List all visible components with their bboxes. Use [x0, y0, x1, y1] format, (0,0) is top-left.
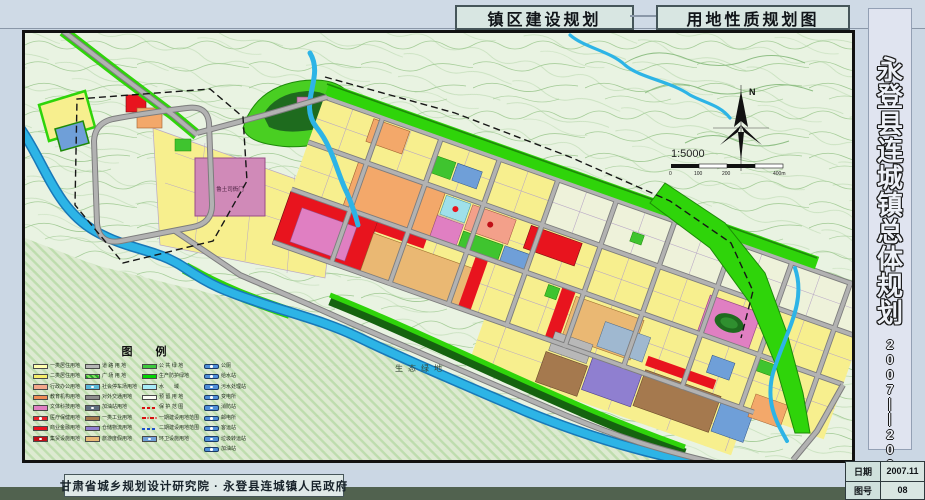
legend-item: 广 场 用 地 — [85, 372, 137, 381]
legend-item-label: 公 共 绿 地 — [159, 364, 183, 369]
legend-swatch-symbol-icon — [210, 438, 213, 441]
legend-item: 公 共 绿 地 — [142, 362, 199, 371]
legend-swatch-symbol-icon — [210, 396, 213, 399]
stamp-table: 日期 2007.11 图号 08 — [845, 461, 925, 500]
legend-swatch — [142, 364, 157, 370]
legend-item: 保 护 范 围 — [142, 404, 199, 413]
legend-item-label: 加油站 — [221, 447, 236, 452]
legend-swatch-symbol-icon — [148, 438, 151, 441]
sheet-title-series: 镇区建设规划 — [455, 5, 634, 30]
legend-item: 对外交通用地 — [85, 393, 137, 402]
legend-item-label: 一期建设用地范围 — [159, 416, 199, 421]
legend-item-label: 邮电所 — [221, 416, 236, 421]
legend-item: 邮电所 — [204, 414, 246, 423]
scale-tick-400: 400m — [773, 171, 786, 177]
legend-item-label: 垃圾转运站 — [221, 437, 246, 442]
date-value: 2007.11 — [881, 462, 924, 481]
legend-item: 教育机构用地 — [33, 393, 80, 402]
legend-item: 集贸设施用地 — [33, 435, 80, 444]
legend-swatch — [142, 436, 157, 442]
legend-title: 图 例 — [33, 343, 265, 359]
legend-item-label: 客运站 — [221, 426, 236, 431]
legend-item-label: 一类工业用地 — [102, 416, 132, 421]
vertical-char: — — [883, 413, 898, 426]
sheet-title-map-label: 用地性质规划图 — [686, 6, 819, 30]
stamp-row-date: 日期 2007.11 — [846, 462, 924, 481]
vertical-char: 2 — [886, 427, 893, 442]
legend-swatch — [204, 447, 219, 453]
vertical-char: 划 — [877, 300, 903, 327]
legend-swatch — [204, 395, 219, 401]
credit-box: 甘肃省城乡规划设计研究院 · 永登县连城镇人民政府 — [64, 474, 344, 497]
legend-swatch — [85, 416, 100, 422]
legend-item-label: 广 场 用 地 — [102, 374, 126, 379]
legend-item-label: 医疗保健用地 — [50, 416, 80, 421]
legend-columns: 一类居住用地二类居住用地行政办公用地教育机构用地文体科技用地医疗保健用地商业金融… — [33, 362, 265, 454]
scale-tick-0: 0 — [669, 171, 672, 177]
legend-item: 文体科技用地 — [33, 404, 80, 413]
legend-item: 客运站 — [204, 424, 246, 433]
legend-item: 生产防护绿地 — [142, 372, 199, 381]
legend-item: 给水站 — [204, 372, 246, 381]
legend-item: 旅游度假用地 — [85, 435, 137, 444]
legend-item-label: 教育机构用地 — [50, 395, 80, 400]
legend-item-label: 消防站 — [221, 405, 236, 410]
legend-item: 行政办公用地 — [33, 383, 80, 392]
sheet-title-map: 用地性质规划图 — [656, 5, 850, 30]
label-yamen: 鲁土司衙门 — [216, 185, 244, 193]
legend-swatch — [33, 395, 48, 401]
legend-item-label: 仓储物流用地 — [102, 426, 132, 431]
legend-swatch-symbol-icon — [210, 427, 213, 430]
legend-swatch-symbol-icon — [210, 375, 213, 378]
vertical-char: 体 — [877, 246, 903, 273]
legend-item: 变电所 — [204, 393, 246, 402]
legend-swatch — [33, 384, 48, 390]
legend-swatch — [85, 405, 100, 411]
legend-swatch — [142, 374, 157, 380]
plan-sheet: 镇区建设规划 用地性质规划图 — [0, 0, 925, 500]
legend-swatch — [142, 384, 157, 390]
compass-north-label: N — [749, 87, 756, 97]
scale-ratio: 1:5000 — [671, 148, 705, 160]
vertical-char: 镇 — [877, 192, 903, 219]
legend-item: 医疗保健用地 — [33, 414, 80, 423]
map-frame: 鲁土司衙门 — [22, 30, 855, 463]
legend-swatch — [142, 428, 157, 430]
legend-swatch — [85, 426, 100, 432]
vertical-char: 县 — [877, 111, 903, 138]
title-connector-line — [630, 15, 656, 17]
vertical-char: 0 — [886, 352, 893, 367]
legend-item: 一类居住用地 — [33, 362, 80, 371]
legend-swatch — [204, 384, 219, 390]
legend-swatch — [204, 405, 219, 411]
legend-swatch-symbol-icon — [210, 365, 213, 368]
legend-item: 环卫设施用地 — [142, 435, 199, 444]
vertical-char: 永 — [877, 57, 903, 84]
sheet-title-series-label: 镇区建设规划 — [487, 6, 601, 30]
legend-item: 二期建设用地范围 — [142, 424, 199, 433]
vertical-char: 规 — [877, 273, 903, 300]
legend-item-label: 保 护 范 围 — [159, 405, 183, 410]
legend-swatch — [33, 436, 48, 442]
legend-swatch — [204, 436, 219, 442]
legend-item-label: 商业金融用地 — [50, 426, 80, 431]
legend-item: 一期建设用地范围 — [142, 414, 199, 423]
map-legend: 图 例 一类居住用地二类居住用地行政办公用地教育机构用地文体科技用地医疗保健用地… — [33, 343, 265, 454]
legend-item-label: 旅游度假用地 — [102, 437, 132, 442]
legend-swatch — [85, 364, 100, 370]
legend-swatch-symbol-icon — [210, 386, 213, 389]
vertical-char: 登 — [877, 84, 903, 111]
vertical-char: 7 — [886, 382, 893, 397]
legend-item: 加油站用地 — [85, 404, 137, 413]
legend-item-label: 道 路 用 地 — [102, 364, 126, 369]
date-label: 日期 — [846, 462, 881, 481]
legend-swatch — [142, 407, 157, 409]
vertical-char: 2 — [886, 337, 893, 352]
credit-text: 甘肃省城乡规划设计研究院 · 永登县连城镇人民政府 — [60, 478, 348, 494]
legend-item: 预 留 用 地 — [142, 393, 199, 402]
legend-swatch-symbol-icon — [210, 417, 213, 420]
legend-swatch — [85, 395, 100, 401]
legend-swatch-symbol-icon — [210, 448, 213, 451]
legend-item-label: 二期建设用地范围 — [159, 426, 199, 431]
legend-column-4: 公厕给水站污水处理站变电所消防站邮电所客运站垃圾转运站加油站 — [204, 362, 246, 454]
legend-column-3: 公 共 绿 地生产防护绿地水 域预 留 用 地保 护 范 围一期建设用地范围二期… — [142, 362, 199, 454]
sheet-title-panel: 永登县连城镇总体规划 2007——2020 — [868, 8, 912, 450]
legend-item-label: 对外交通用地 — [102, 395, 132, 400]
legend-swatch — [204, 426, 219, 432]
vertical-sheet-title: 永登县连城镇总体规划 — [877, 9, 903, 327]
vertical-char: 0 — [886, 367, 893, 382]
legend-swatch — [33, 405, 48, 411]
legend-swatch-symbol-icon — [91, 407, 94, 410]
legend-item-label: 行政办公用地 — [50, 385, 80, 390]
label-eco-green: 生态绿地 — [395, 363, 447, 373]
legend-swatch-symbol-icon — [91, 386, 94, 389]
legend-item: 垃圾转运站 — [204, 435, 246, 444]
legend-item: 污水处理站 — [204, 383, 246, 392]
legend-item: 公厕 — [204, 362, 246, 371]
legend-item-label: 变电所 — [221, 395, 236, 400]
legend-item-label: 给水站 — [221, 374, 236, 379]
vertical-char: 城 — [877, 165, 903, 192]
legend-item: 二类居住用地 — [33, 372, 80, 381]
legend-swatch — [33, 364, 48, 370]
legend-swatch — [204, 374, 219, 380]
legend-swatch-symbol-icon — [39, 417, 42, 420]
legend-item-label: 二类居住用地 — [50, 374, 80, 379]
legend-column-1: 一类居住用地二类居住用地行政办公用地教育机构用地文体科技用地医疗保健用地商业金融… — [33, 362, 80, 454]
legend-item-label: 集贸设施用地 — [50, 437, 80, 442]
legend-item: 水 域 — [142, 383, 199, 392]
legend-column-2: 道 路 用 地广 场 用 地社会停车场用地对外交通用地加油站用地一类工业用地仓储… — [85, 362, 137, 454]
legend-item-label: 水 域 — [159, 385, 179, 390]
legend-item: 道 路 用 地 — [85, 362, 137, 371]
legend-swatch — [33, 426, 48, 432]
sheetno-value: 08 — [881, 482, 924, 500]
legend-item: 消防站 — [204, 404, 246, 413]
legend-swatch — [142, 417, 157, 419]
legend-item-label: 社会停车场用地 — [102, 385, 137, 390]
vertical-char: 连 — [877, 138, 903, 165]
legend-item: 加油站 — [204, 445, 246, 454]
legend-item: 社会停车场用地 — [85, 383, 137, 392]
legend-swatch — [142, 395, 157, 401]
stamp-row-sheetno: 图号 08 — [846, 481, 924, 500]
legend-item: 商业金融用地 — [33, 424, 80, 433]
legend-swatch-symbol-icon — [39, 438, 42, 441]
legend-swatch — [85, 374, 100, 380]
legend-swatch — [204, 416, 219, 422]
legend-item-label: 公厕 — [221, 364, 231, 369]
legend-item: 一类工业用地 — [85, 414, 137, 423]
scale-tick-200: 200 — [722, 171, 731, 177]
legend-swatch — [204, 364, 219, 370]
legend-item-label: 加油站用地 — [102, 405, 127, 410]
vertical-char: 0 — [886, 442, 893, 457]
legend-swatch — [85, 436, 100, 442]
legend-swatch — [33, 416, 48, 422]
scale-tick-100: 100 — [694, 171, 703, 177]
legend-item-label: 一类居住用地 — [50, 364, 80, 369]
legend-item-label: 预 留 用 地 — [159, 395, 183, 400]
legend-swatch — [33, 374, 48, 380]
legend-item-label: 文体科技用地 — [50, 405, 80, 410]
vertical-char: — — [883, 398, 898, 411]
legend-swatch — [85, 384, 100, 390]
legend-swatch-symbol-icon — [210, 407, 213, 410]
sheetno-label: 图号 — [846, 482, 881, 500]
legend-item: 仓储物流用地 — [85, 424, 137, 433]
vertical-char: 总 — [877, 219, 903, 246]
legend-item-label: 生产防护绿地 — [159, 374, 189, 379]
legend-item-label: 污水处理站 — [221, 385, 246, 390]
legend-item-label: 环卫设施用地 — [159, 437, 189, 442]
